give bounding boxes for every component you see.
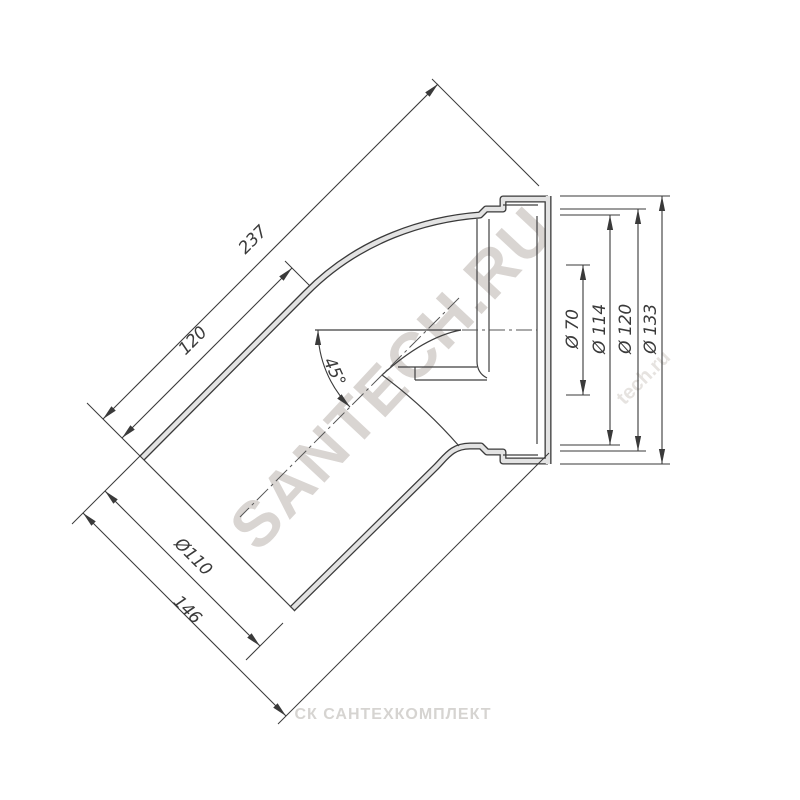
dim-line-120	[122, 268, 292, 438]
witness-socket-face	[432, 79, 539, 186]
dim-label-groove-dia: Ø 120	[616, 304, 636, 355]
dim-label-total-length: 237	[235, 221, 272, 258]
dim-label-inner-dia: Ø 70	[563, 309, 583, 349]
dim-label-socket-dia: Ø 114	[590, 304, 610, 355]
pipe-elbow-drawing: SANTECH.RU tech.ru СК САНТЕХКОМПЛЕКТ	[0, 0, 800, 800]
watermark-bottom: СК САНТЕХКОМПЛЕКТ	[294, 706, 491, 723]
inner-stop-wall-bottom-curve	[477, 361, 487, 378]
witness-bend-start	[285, 261, 310, 286]
dim-label-pipe-od: Ø110	[169, 533, 215, 579]
watermark-small: tech.ru	[612, 346, 675, 409]
witness-mouth-down	[72, 456, 140, 524]
dim-label-tail-length: 146	[169, 592, 206, 629]
drawing-canvas: SANTECH.RU tech.ru СК САНТЕХКОМПЛЕКТ	[0, 0, 800, 800]
dimension-labels: 237 120 Ø110 146 45° Ø 70 Ø 114 Ø 120 Ø …	[169, 221, 661, 628]
witness-mouth-up	[87, 403, 140, 456]
witness-mouth-lower-corner	[246, 623, 283, 660]
dim-label-flange-dia: Ø 133	[641, 304, 661, 355]
